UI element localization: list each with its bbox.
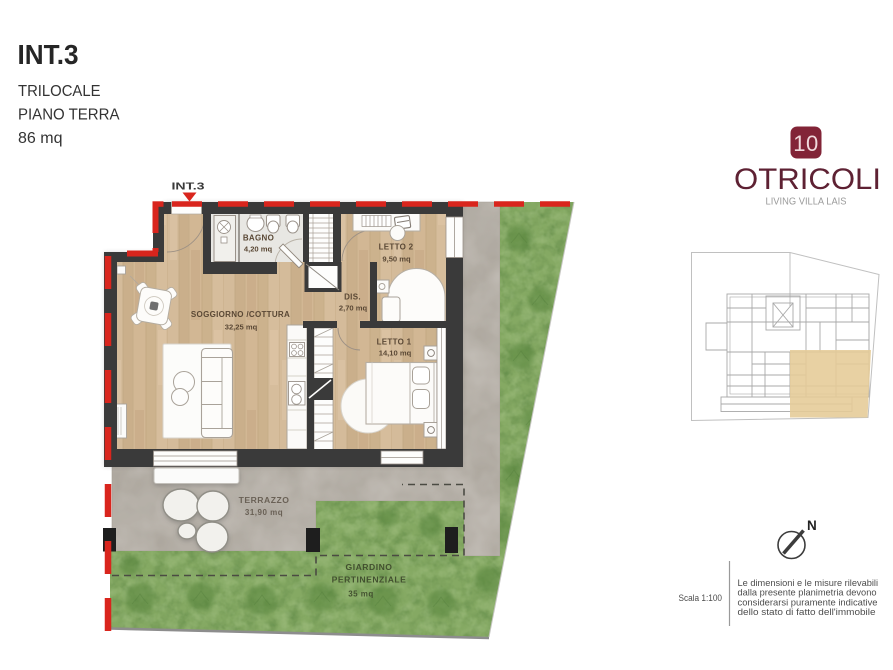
svg-text:LIVING VILLA LAIS: LIVING VILLA LAIS (766, 197, 847, 208)
svg-text:TERRAZZO: TERRAZZO (239, 495, 290, 505)
svg-text:31,90 mq: 31,90 mq (245, 508, 283, 517)
svg-text:TRILOCALE: TRILOCALE (18, 83, 101, 100)
svg-text:LETTO 2: LETTO 2 (379, 243, 414, 252)
svg-text:SOGGIORNO /COTTURA: SOGGIORNO /COTTURA (191, 310, 290, 319)
svg-text:dello stato di fatto dell'immo: dello stato di fatto dell'immobile (738, 606, 876, 617)
svg-text:GIARDINO: GIARDINO (346, 562, 393, 572)
svg-text:32,25 mq: 32,25 mq (225, 323, 258, 332)
svg-text:INT.3: INT.3 (172, 181, 205, 193)
svg-text:86 mq: 86 mq (18, 130, 63, 147)
svg-text:PERTINENZIALE: PERTINENZIALE (332, 575, 407, 585)
svg-text:Scala 1:100: Scala 1:100 (679, 592, 723, 603)
svg-text:N: N (807, 518, 817, 533)
svg-text:DIS.: DIS. (344, 293, 361, 302)
svg-text:14,10 mq: 14,10 mq (379, 349, 412, 358)
svg-text:PIANO TERRA: PIANO TERRA (18, 107, 120, 124)
svg-text:INT.3: INT.3 (18, 39, 79, 70)
svg-text:OTRICOLI: OTRICOLI (734, 163, 881, 196)
svg-text:BAGNO: BAGNO (243, 234, 274, 243)
svg-text:LETTO 1: LETTO 1 (377, 338, 412, 347)
svg-text:4,20 mq: 4,20 mq (244, 245, 273, 254)
svg-text:2,70 mq: 2,70 mq (339, 304, 368, 313)
svg-text:35 mq: 35 mq (348, 590, 374, 599)
svg-text:9,50 mq: 9,50 mq (382, 255, 411, 264)
svg-text:10: 10 (793, 131, 818, 156)
